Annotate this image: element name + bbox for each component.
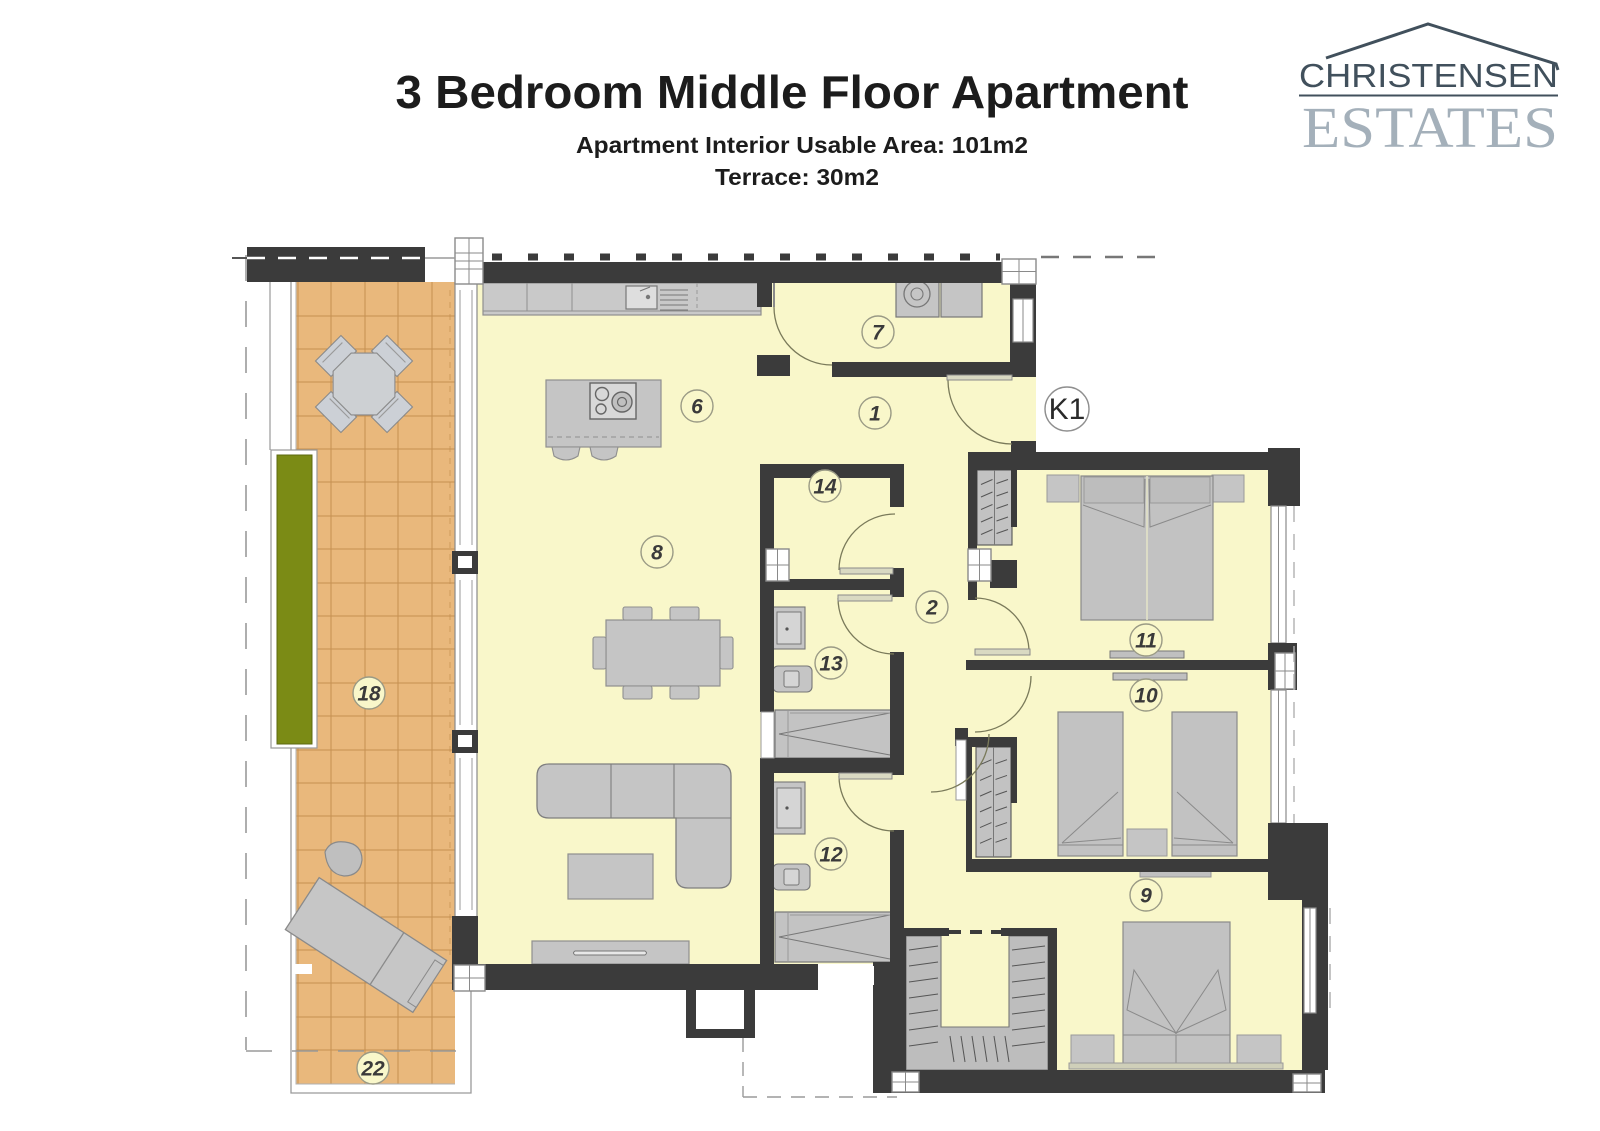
svg-text:Apartment Interior Usable Area: Apartment Interior Usable Area: 101m2: [576, 132, 1028, 158]
svg-text:2: 2: [925, 597, 938, 620]
svg-text:10: 10: [1134, 685, 1158, 708]
svg-text:9: 9: [1140, 885, 1152, 908]
svg-text:3 Bedroom Middle Floor Apartme: 3 Bedroom Middle Floor Apartment: [396, 66, 1189, 118]
svg-text:1: 1: [869, 403, 881, 426]
svg-text:8: 8: [651, 542, 663, 565]
svg-text:22: 22: [360, 1058, 385, 1081]
svg-text:18: 18: [357, 683, 381, 706]
svg-text:6: 6: [691, 396, 703, 419]
svg-text:12: 12: [819, 844, 843, 867]
svg-text:11: 11: [1135, 630, 1157, 653]
svg-text:Terrace: 30m2: Terrace: 30m2: [715, 164, 879, 190]
svg-text:CHRISTENSEN: CHRISTENSEN: [1299, 57, 1558, 94]
svg-text:7: 7: [872, 322, 885, 345]
svg-text:13: 13: [819, 653, 843, 676]
svg-text:ESTATES: ESTATES: [1302, 95, 1558, 160]
svg-text:K1: K1: [1049, 393, 1086, 426]
svg-text:14: 14: [813, 476, 837, 499]
